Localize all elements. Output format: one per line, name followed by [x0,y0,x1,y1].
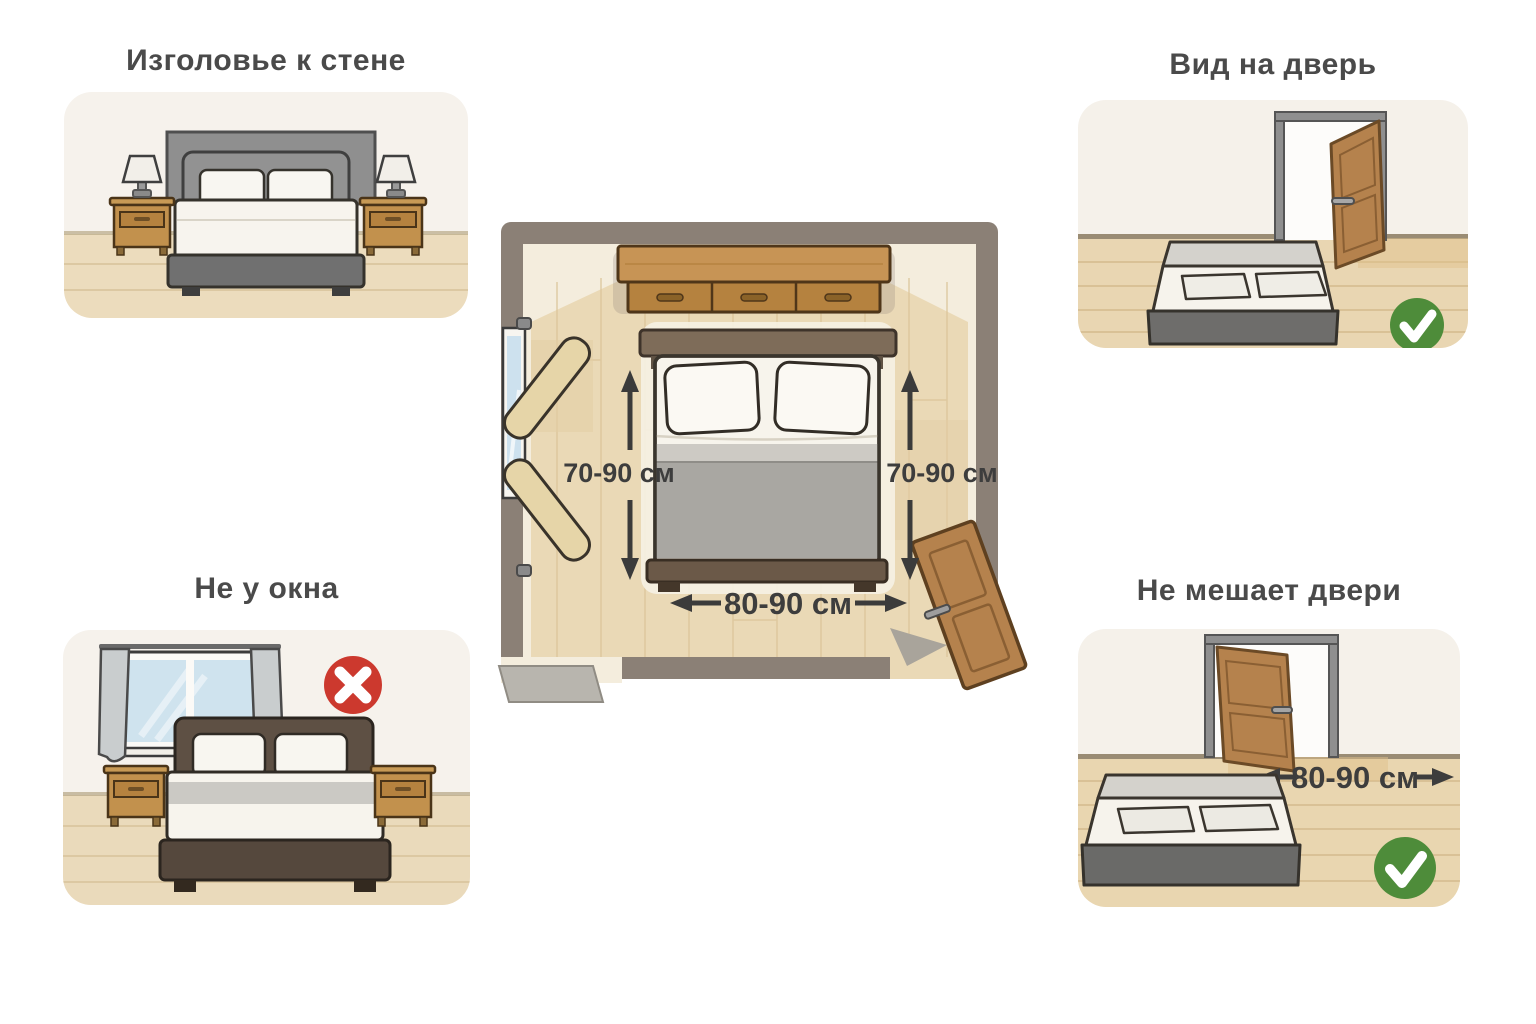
pillow-right [1256,272,1326,297]
headboard [640,330,896,356]
door [1205,635,1338,771]
nightstand-right [360,198,426,255]
pillow-right [275,734,347,776]
wall [1078,100,1468,238]
bed [1148,242,1338,344]
title-headboard-wall: Изголовье к стене [64,44,468,78]
panel-headboard-wall [64,92,468,318]
nightstand-left [104,766,168,826]
dresser [613,246,895,314]
right-clearance-label: 70-90 см [886,458,998,488]
pillow-right [1200,805,1278,831]
blanket [1163,242,1323,266]
pillow-left [1182,274,1250,299]
door-leaf [1331,121,1384,268]
floorplan-illustration: 70-90 см 70-90 см 80-90 см [495,220,1040,705]
panel-door-view [1078,100,1468,348]
foot-clearance-label: 80-90 см [724,586,852,621]
title-door-view: Вид на дверь [1078,48,1468,82]
checkmark-icon [1374,837,1436,899]
curtain-left [99,649,129,761]
left-clearance-label: 70-90 см [563,458,675,488]
bed-base [168,255,364,287]
title-not-by-window: Не у окна [63,572,470,606]
nightstand-right [371,766,435,826]
bed-under-window-illustration [63,630,470,905]
mattress [175,200,357,258]
door-clearance-label: 80-90 см [1291,760,1419,795]
bed-base [1148,311,1338,344]
nightstand-left [110,198,174,255]
pillow-left [1118,807,1194,833]
cross-icon [324,656,382,714]
pillow-left [193,734,265,776]
bed [168,152,364,296]
entry-step [499,666,603,702]
bed [160,718,390,892]
bedroom-front-illustration [64,92,468,318]
bedroom-layout-infographic: Изголовье к стене Вид на дверь Не у окна… [0,0,1536,1024]
bed [1082,775,1300,885]
blanket-fold [655,444,879,462]
blanket [1098,775,1284,798]
bed-base [160,840,390,880]
title-not-blocking-door: Не мешает двери [1078,574,1460,608]
bed-facing-door-illustration [1078,100,1468,348]
floorplan: 70-90 см 70-90 см 80-90 см [495,220,1040,705]
blanket [655,462,879,558]
footboard [647,560,887,582]
panel-not-blocking-door: 80-90 см [1078,629,1460,907]
door-handle [1332,198,1354,204]
door-handle [1272,707,1292,713]
bed-base [1082,845,1300,885]
bed-clear-of-door-illustration: 80-90 см [1078,629,1460,907]
panel-not-by-window [63,630,470,905]
bed [640,330,896,592]
